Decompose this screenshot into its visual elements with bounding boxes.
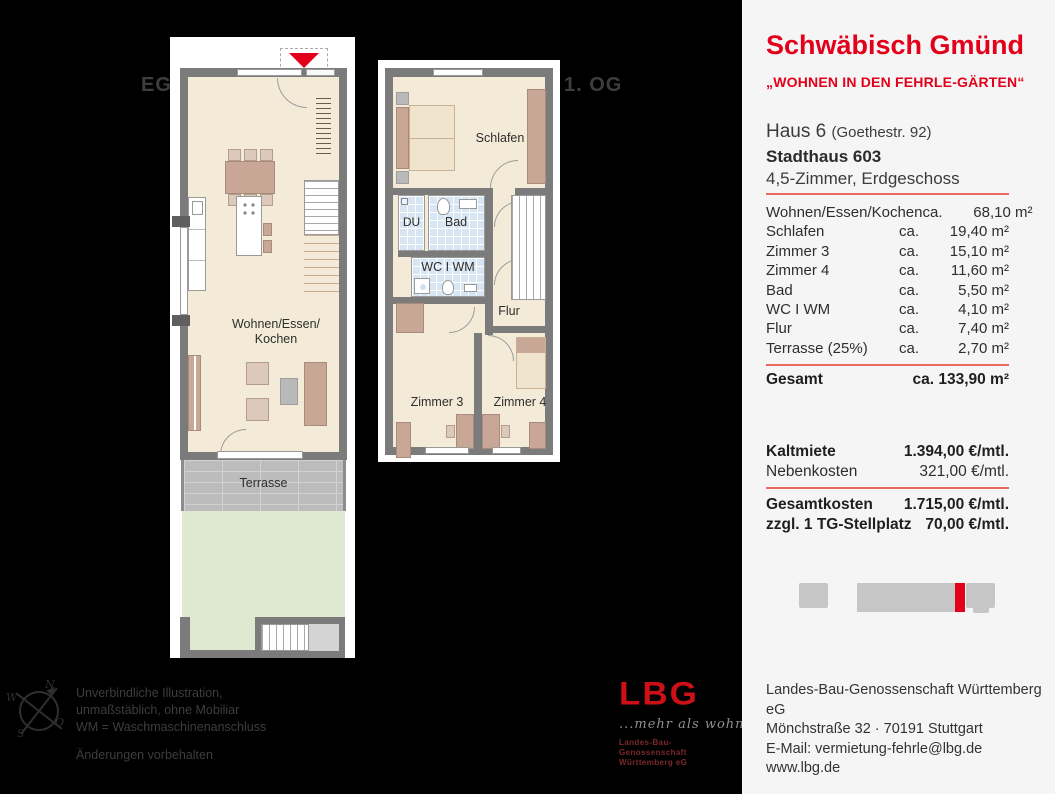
stellplatz-label: zzgl. 1 TG-Stellplatz [766, 516, 925, 534]
entrance-door [306, 69, 335, 76]
double-bed [409, 105, 455, 171]
desk-chair [501, 425, 510, 438]
disclaimer-line: Unverbindliche Illustration, [76, 685, 266, 702]
bed-pillow [517, 338, 545, 353]
wall [474, 333, 482, 448]
bed-headboard [396, 107, 409, 169]
house-line: Haus 6 (Goethestr. 92) [766, 121, 932, 143]
og-floor-label: 1. OG [564, 74, 622, 97]
og-top-window [433, 69, 483, 76]
contact-block: Landes-Bau-Genossenschaft Württemberg eG… [766, 681, 1055, 779]
armchair [246, 362, 269, 385]
room-label: Terrasse (25%) [766, 339, 899, 358]
wall [515, 188, 546, 195]
total-area-row: Gesamt ca. 133,90 m² [766, 371, 1009, 389]
stellplatz-value: 70,00 €/mtl. [925, 516, 1009, 534]
eg-left-window [180, 227, 188, 315]
nebenkosten-value: 321,00 €/mtl. [919, 463, 1009, 481]
lbg-logo-tagline: ...mehr als wohnen [619, 717, 739, 732]
contact-website[interactable]: www.lbg.de [766, 759, 1055, 779]
zimmer4-window [492, 447, 521, 454]
ca-label: ca. [899, 319, 935, 338]
cooktop [241, 201, 257, 217]
lbg-org-line: Landes-Bau-Genossenschaft [619, 738, 739, 758]
garden-bottom-wall [183, 650, 259, 658]
dining-chair [260, 149, 273, 161]
zimmer4-label: Zimmer 4 [489, 395, 551, 410]
nightstand [396, 171, 409, 184]
city-title: Schwäbisch Gmünd [766, 30, 1024, 61]
ca-label: ca. [923, 203, 959, 222]
table-row: Flur ca. 7,40 m² [766, 319, 1009, 338]
sink [464, 284, 477, 292]
og-plan-sheet: Schlafen DU [378, 60, 560, 462]
table-row: Zimmer 4 ca. 11,60 m² [766, 261, 1009, 280]
divider-rule [766, 364, 1009, 366]
eg-floor-label: EG [141, 74, 172, 97]
gesamtkosten-row: Gesamtkosten 1.715,00 €/mtl. [766, 496, 1009, 514]
zimmer3-door-arc [449, 307, 475, 333]
flyer-page: EG 1. OG [0, 0, 1055, 794]
ca-label: ca. [899, 261, 935, 280]
eg-stairs-above-cutplane [304, 235, 339, 293]
gesamtkosten-value: 1.715,00 €/mtl. [904, 496, 1009, 514]
site-row-building [857, 583, 955, 612]
eg-plan-sheet: Wohnen/Essen/ Kochen [170, 37, 355, 658]
ca-label: ca. [899, 339, 935, 358]
room-area: 15,10 m² [935, 242, 1009, 261]
unit-type: 4,5-Zimmer, Erdgeschoss [766, 169, 960, 189]
room-label: Schlafen [766, 222, 899, 241]
zimmer3-window [425, 447, 469, 454]
room-area: 5,50 m² [935, 281, 1009, 300]
terrace-glass-door [217, 451, 303, 459]
bad-label: Bad [433, 215, 479, 230]
room-label: Zimmer 3 [766, 242, 899, 261]
terrace-area: Terrasse [181, 460, 346, 511]
company-address: Mönchstraße 32 · 70191 Stuttgart [766, 720, 1055, 740]
ca-label: ca. [899, 242, 935, 261]
window-sill [172, 315, 190, 326]
compass-icon: N W S O [8, 680, 70, 742]
coffee-table [280, 378, 298, 405]
table-row: Schlafen ca. 19,40 m² [766, 222, 1009, 241]
nebenkosten-label: Nebenkosten [766, 463, 919, 481]
room-area: 68,10 m² [959, 203, 1033, 222]
eg-building-walls: Wohnen/Essen/ Kochen [180, 68, 347, 460]
terrace-label: Terrasse [184, 476, 343, 491]
disclaimer-line: WM = Waschmaschinenanschluss [76, 719, 266, 736]
house-number: Haus 6 [766, 121, 826, 142]
table-row: Terrasse (25%) ca. 2,70 m² [766, 339, 1009, 358]
divider-rule [766, 193, 1009, 195]
room-label: Zimmer 4 [766, 261, 899, 280]
flur-label: Flur [485, 304, 533, 319]
table-row: Wohnen/Essen/Kochen ca. 68,10 m² [766, 203, 1009, 222]
kaltmiete-value: 1.394,00 €/mtl. [904, 443, 1009, 461]
compass-w: W [6, 691, 17, 704]
bar-stool [263, 240, 272, 253]
compass-o: O [55, 716, 64, 729]
wardrobe [527, 89, 546, 184]
wall [493, 326, 546, 333]
zimmer3-bed [396, 422, 411, 458]
nightstand [396, 92, 409, 105]
stair-landing [309, 624, 339, 651]
schlafen-door-arc [490, 160, 518, 188]
disclaimer-line: unmaßstäblich, ohne Mobiliar [76, 702, 266, 719]
du-label: DU [396, 215, 427, 230]
room-area: 2,70 m² [935, 339, 1009, 358]
zimmer3-cabinet [396, 303, 424, 333]
sofa [304, 362, 327, 426]
exterior-stairs [261, 624, 309, 651]
zimmer4-cabinet [529, 422, 546, 449]
room-area: 4,10 m² [935, 300, 1009, 319]
room-area: 11,60 m² [935, 261, 1009, 280]
unit-name: Stadthaus 603 [766, 147, 881, 167]
kitchen-sink [192, 201, 203, 215]
wall [393, 188, 487, 195]
dining-table [225, 161, 275, 194]
wc-wm-label: WC I WM [411, 260, 485, 275]
company-name: Landes-Bau-Genossenschaft Württemberg eG [766, 681, 1055, 720]
eg-floor-area: Wohnen/Essen/ Kochen [188, 77, 339, 452]
stellplatz-row: zzgl. 1 TG-Stellplatz 70,00 €/mtl. [766, 516, 1009, 534]
zimmer4-desk [482, 414, 500, 449]
zimmer3-desk [456, 414, 474, 449]
contact-email[interactable]: E-Mail: vermietung-fehrle@lbg.de [766, 740, 1055, 760]
zimmer4-bed [516, 337, 546, 389]
sideboard [188, 355, 201, 431]
lbg-logo: LBG ...mehr als wohnen Landes-Bau-Genoss… [619, 676, 739, 768]
entrance-arrow-icon [289, 53, 319, 68]
eg-stairs [304, 180, 339, 235]
radiator [316, 98, 331, 154]
ca-label: ca. [899, 300, 935, 319]
room-area: 19,40 m² [935, 222, 1009, 241]
kitchen-counter [188, 197, 206, 291]
site-building-foot [973, 605, 989, 613]
kaltmiete-label: Kaltmiete [766, 443, 904, 461]
ca-label: ca. [899, 222, 935, 241]
room-label: Bad [766, 281, 899, 300]
lbg-org-line: Württemberg eG [619, 758, 739, 768]
site-unit-highlight [955, 583, 965, 612]
gesamtkosten-label: Gesamtkosten [766, 496, 904, 514]
lbg-logo-mark: LBG [619, 676, 739, 713]
table-row: Zimmer 3 ca. 15,10 m² [766, 242, 1009, 261]
changes-reserved-note: Änderungen vorbehalten [76, 748, 213, 762]
room-label: Flur [766, 319, 899, 338]
og-building-walls: Schlafen DU [385, 68, 553, 455]
eg-top-window [237, 69, 302, 76]
window-sill [172, 216, 190, 227]
room-area: 7,40 m² [935, 319, 1009, 338]
total-area: ca. 133,90 m² [912, 371, 1009, 389]
sink [459, 199, 477, 209]
nebenkosten-row: Nebenkosten 321,00 €/mtl. [766, 463, 1009, 481]
armchair [246, 398, 269, 421]
kaltmiete-row: Kaltmiete 1.394,00 €/mtl. [766, 443, 1009, 461]
living-room-label: Wohnen/Essen/ Kochen [216, 317, 336, 347]
table-row: WC I WM ca. 4,10 m² [766, 300, 1009, 319]
og-floor-area: Schlafen DU [393, 77, 545, 447]
site-building-block [799, 583, 828, 608]
compass-s: S [17, 727, 25, 740]
room-label: Wohnen/Essen/Kochen [766, 203, 923, 222]
project-subtitle: „WOHNEN IN DEN FEHRLE-GÄRTEN“ [766, 74, 1025, 90]
street-note: (Goethestr. 92) [831, 124, 931, 141]
info-panel: Schwäbisch Gmünd „WOHNEN IN DEN FEHRLE-G… [742, 0, 1055, 794]
table-row: Bad ca. 5,50 m² [766, 281, 1009, 300]
divider-rule [766, 487, 1009, 489]
disclaimer-text: Unverbindliche Illustration, unmaßstäbli… [76, 685, 266, 736]
room-label: WC I WM [766, 300, 899, 319]
lbg-logo-org: Landes-Bau-Genossenschaft Württemberg eG [619, 738, 739, 768]
compass-n: N [45, 678, 55, 691]
toilet [442, 280, 454, 295]
bar-stool [263, 223, 272, 236]
zimmer4-door-arc [488, 335, 514, 361]
og-stairs [511, 195, 546, 300]
washing-machine [414, 278, 430, 294]
shower-head [401, 198, 408, 205]
total-label: Gesamt [766, 371, 912, 389]
room-area-table: Wohnen/Essen/Kochen ca. 68,10 m² Schlafe… [766, 203, 1009, 358]
kitchen-island [236, 196, 262, 256]
exterior-stair-structure [255, 617, 345, 658]
dining-chair [244, 149, 257, 161]
zimmer3-label: Zimmer 3 [401, 395, 473, 410]
desk-chair [446, 425, 455, 438]
ca-label: ca. [899, 281, 935, 300]
toilet [437, 198, 450, 215]
dining-chair [228, 149, 241, 161]
